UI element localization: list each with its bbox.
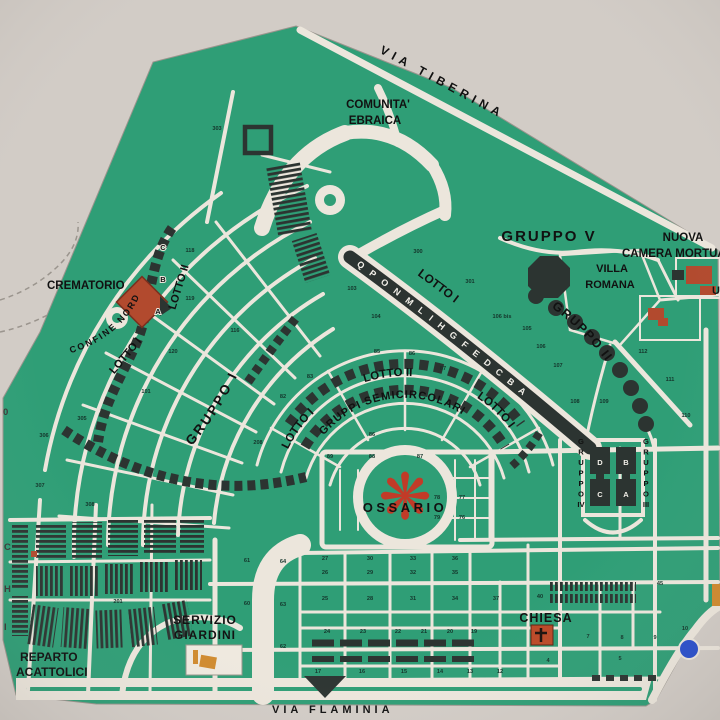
plot-number: 45 [657, 581, 663, 587]
plot-number: 5 [618, 656, 621, 662]
plot-number: 78 [434, 495, 440, 501]
plot-number: 34 [452, 596, 459, 602]
plot-number: 26 [322, 570, 328, 576]
plot-number: 29 [367, 570, 373, 576]
vertical-label-char: P [643, 479, 648, 488]
vertical-label-char: R [578, 448, 584, 457]
plot-number: 28 [367, 596, 373, 602]
plot-number: 106 bis [493, 314, 512, 320]
vertical-label-char: G [643, 437, 649, 446]
plot-number: 79 [434, 515, 440, 521]
vertical-label-char: G [578, 437, 584, 446]
plot-number: 10 [682, 626, 688, 632]
plot-number: 106 [536, 344, 545, 350]
small-red-marker [31, 551, 37, 557]
label-comunita-ebraica-2: EBRAICA [349, 115, 401, 127]
plot-number: 64 [280, 559, 287, 565]
ossario-pinwheel-icon: ❋ [378, 461, 432, 533]
plot-number: 112 [638, 349, 647, 355]
label-via-flaminia: VIA FLAMINIA [272, 704, 394, 716]
plot-number: 23 [360, 629, 366, 635]
plot-number: 20 [447, 629, 453, 635]
label-giardini: GIARDINI [174, 628, 236, 642]
plot-number: 77 [459, 495, 465, 501]
edge-letter: C [4, 542, 11, 553]
plot-number: 16 [359, 669, 365, 675]
plot-number: 13 [467, 669, 473, 675]
plot-number: 76 [459, 515, 465, 521]
plot-number: 24 [324, 629, 331, 635]
plot-number: 21 [421, 629, 427, 635]
plot-number: 82 [280, 394, 286, 400]
plot-number: 118 [185, 248, 194, 254]
label-u-partial: U [712, 285, 720, 297]
vertical-label-char: IV [577, 500, 585, 509]
plot-number: 7 [586, 634, 589, 640]
block-letter: A [155, 307, 161, 316]
plot-number: 17 [315, 669, 321, 675]
plot-number: 119 [185, 296, 194, 302]
chiesa-building [531, 625, 553, 645]
plot-number: 88 [369, 454, 375, 460]
plot-number: 35 [452, 570, 458, 576]
plot-number: 8 [620, 635, 623, 641]
block-letter: C [597, 490, 603, 499]
edge-letter: 0 [3, 407, 8, 418]
plot-number: 15 [401, 669, 407, 675]
vertical-label-char: U [578, 458, 584, 467]
cemetery-map-svg: ❋ VIA TIBERINA COMUNITA' EBRAICA GRUPPO … [0, 0, 720, 720]
vertical-label-char: III [643, 500, 649, 509]
plot-number: 300 [413, 249, 422, 255]
plot-number: 9 [653, 635, 656, 641]
plot-number: 305 [77, 416, 86, 422]
plot-number: 30 [367, 556, 373, 562]
plot-number: 208 [253, 440, 262, 446]
plot-number: 63 [280, 602, 286, 608]
plot-number: 306 [39, 433, 48, 439]
block-letter: C [160, 243, 166, 252]
plot-number: 22 [395, 629, 401, 635]
plot-number: 33 [410, 556, 416, 562]
plot-number: 37 [493, 596, 499, 602]
plot-number: 101 [141, 389, 150, 395]
plot-number: 27 [322, 556, 328, 562]
plot-number: 19 [471, 629, 477, 635]
label-acattolici: ACATTOLICI [16, 665, 88, 679]
vertical-label-char: R [643, 448, 649, 457]
plot-number: 104 [371, 314, 381, 320]
label-comunita-ebraica-1: COMUNITA' [346, 99, 410, 111]
plot-number: 308 [85, 502, 94, 508]
plot-number: 120 [168, 349, 177, 355]
plot-number: 36 [452, 556, 458, 562]
plot-number: 110 [681, 413, 690, 419]
plot-number: 25 [322, 596, 328, 602]
label-gruppo-v: GRUPPO V [501, 228, 596, 245]
cemetery-map-photo: ❋ VIA TIBERINA COMUNITA' EBRAICA GRUPPO … [0, 0, 720, 720]
label-villa: VILLA [596, 263, 628, 275]
vertical-label-char: O [578, 490, 584, 499]
label-reparto: REPARTO [20, 650, 78, 664]
label-servizio: SERVIZIO [173, 613, 237, 627]
plot-number: 87 [440, 366, 446, 372]
blue-landmark-dot [679, 639, 699, 659]
plot-number: 40 [537, 594, 543, 600]
plot-number: 83 [307, 374, 313, 380]
vertical-label-char: P [578, 469, 583, 478]
label-chiesa: CHIESA [519, 611, 572, 625]
vertical-label-char: P [578, 479, 583, 488]
orange-edge-sliver [712, 584, 720, 606]
block-letter: B [160, 275, 166, 284]
plot-number: 107 [553, 363, 562, 369]
label-crematorio: CREMATORIO [47, 280, 125, 292]
plot-number: 109 [599, 399, 608, 405]
plot-number: 307 [35, 483, 44, 489]
label-romana: ROMANA [585, 279, 635, 291]
label-ossario: OSSARIO [363, 500, 447, 515]
edge-letter: I [4, 622, 7, 633]
vertical-label-char: O [643, 490, 649, 499]
plot-number: 87 [417, 454, 423, 460]
plot-number: 105 [522, 326, 531, 332]
plot-number: 14 [437, 669, 444, 675]
plot-number: 62 [280, 644, 286, 650]
vertical-label-char: P [643, 469, 648, 478]
servizio-giardini-building [186, 645, 242, 675]
plot-number: 301 [465, 279, 474, 285]
label-nuova: NUOVA [663, 232, 704, 244]
plot-number: 86 [409, 351, 415, 357]
plot-number: 116 [230, 328, 239, 334]
plot-number: 108 [570, 399, 579, 405]
label-camera-mortuaria: CAMERA MORTUAR [622, 248, 720, 260]
plot-number: 31 [410, 596, 416, 602]
plot-number: 86 [369, 432, 375, 438]
plot-number: 32 [410, 570, 416, 576]
plot-number: 103 [347, 286, 356, 292]
block-letter: B [623, 458, 629, 467]
plot-number: 111 [666, 377, 675, 383]
gruppo-v-building [528, 256, 570, 298]
edge-letter: H [4, 584, 11, 595]
plot-number: 303 [212, 126, 221, 132]
plot-number: 61 [244, 558, 250, 564]
vertical-label-char: U [643, 458, 649, 467]
plot-number: 89 [327, 454, 333, 460]
plot-number: 12 [497, 669, 503, 675]
plot-number: 85 [374, 349, 380, 355]
block-letter: A [623, 490, 629, 499]
block-letter: D [597, 458, 603, 467]
plot-number: 60 [244, 601, 250, 607]
plot-number: 201 [113, 599, 122, 605]
